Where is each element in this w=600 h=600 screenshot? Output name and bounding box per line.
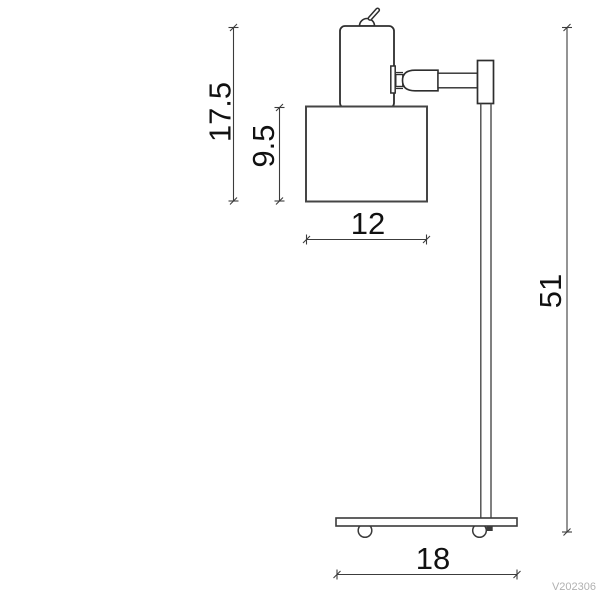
pole-bracket	[478, 61, 494, 104]
lamp-shade	[306, 107, 427, 202]
lamp-head-group	[340, 8, 394, 108]
arm-mount-plate	[391, 66, 395, 93]
watermark-version-code: V202306	[552, 581, 596, 593]
toggle-switch-dome	[360, 19, 375, 26]
lamp-head-housing	[340, 26, 394, 108]
arm-capsule-joint	[403, 70, 439, 91]
base-group	[336, 518, 517, 537]
lamp-arm-group	[391, 61, 494, 104]
dimension-label-pole-height: 51	[533, 274, 568, 308]
dimension-label-shade-width: 12	[351, 206, 385, 241]
dimension-label-head-assembly-height: 17.5	[203, 82, 238, 142]
lamp-pole	[481, 104, 491, 519]
toggle-switch-lever	[368, 8, 380, 21]
lamp-dimension-drawing: 17.5 9.5 12	[0, 0, 600, 600]
arm-bar	[438, 73, 478, 88]
base-plate	[336, 518, 517, 526]
drawing-svg: 17.5 9.5 12	[0, 0, 600, 600]
dimension-label-shade-height: 9.5	[246, 124, 281, 167]
dimension-label-base-width: 18	[416, 541, 450, 576]
